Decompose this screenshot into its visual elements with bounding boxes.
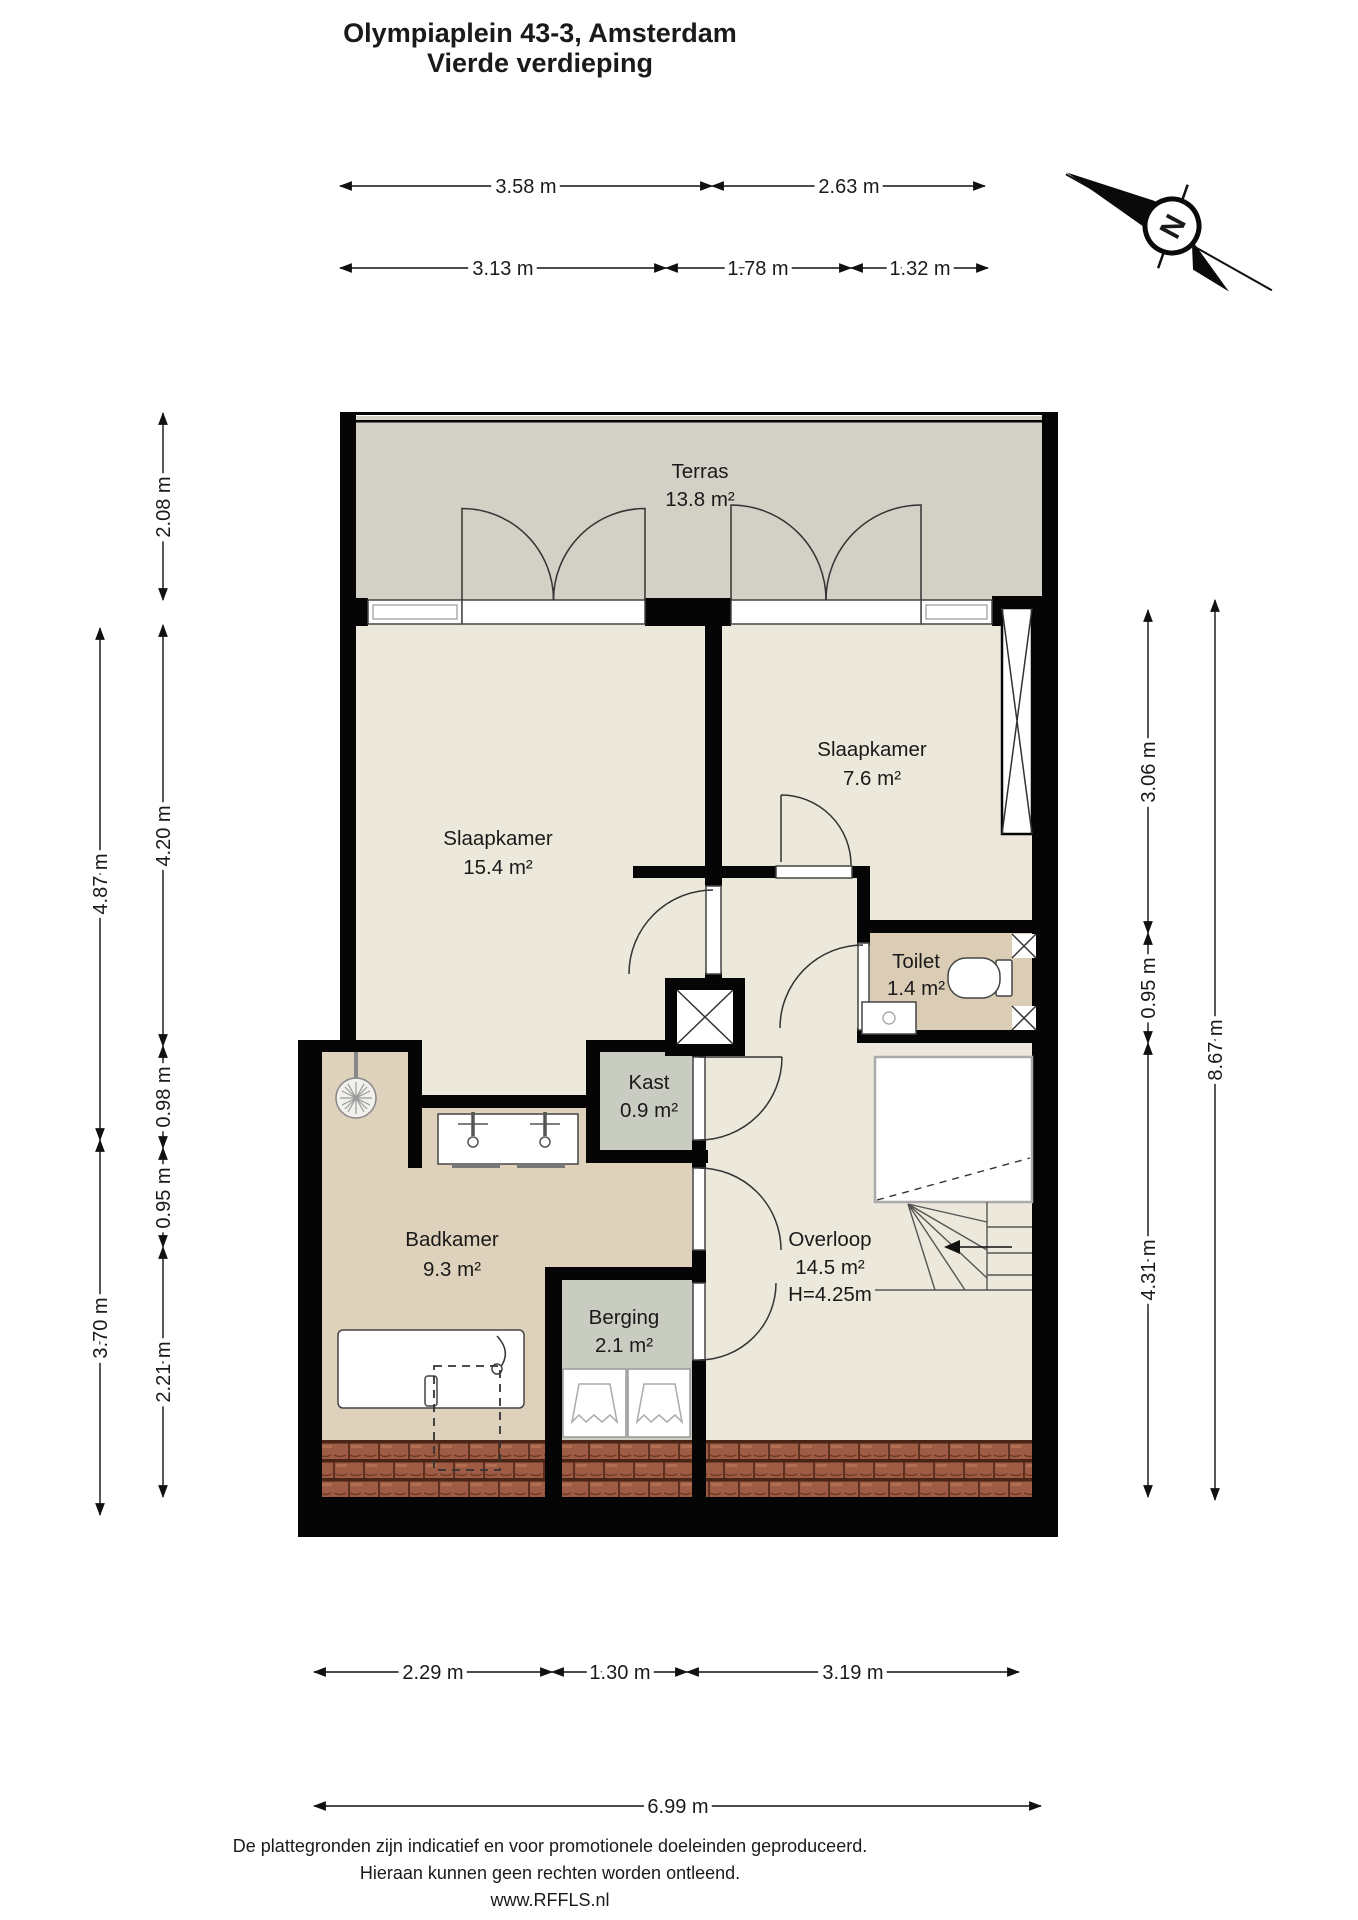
page-title: Olympiaplein 43-3, Amsterdam Vierde verd… (343, 18, 737, 78)
label-overloop-name: Overloop (788, 1228, 871, 1251)
label-overloop-height: H=4.25m (788, 1283, 872, 1306)
roof-tile-band (318, 1440, 1032, 1497)
window (921, 600, 992, 624)
dim-bottom: 3.19 m (822, 1662, 883, 1684)
duct-shaft (677, 990, 733, 1044)
stairwell-void (875, 1057, 1032, 1202)
label-kast-name: Kast (628, 1071, 669, 1094)
label-overloop-area: 14.5 m² (795, 1256, 865, 1279)
title-line1: Olympiaplein 43-3, Amsterdam (343, 18, 737, 48)
label-badkamer-name: Badkamer (405, 1228, 499, 1251)
floorplan-page: Olympiaplein 43-3, Amsterdam Vierde verd… (0, 0, 1358, 1920)
footer-line2: Hieraan kunnen geen rechten worden ontle… (360, 1863, 740, 1883)
compass-rose-icon: N (1047, 135, 1298, 318)
dim-left: 2.08 m (153, 476, 175, 537)
washing-machine (628, 1369, 690, 1437)
label-toilet-name: Toilet (892, 950, 940, 973)
terrace-door-sill (462, 600, 645, 624)
terras-floor (348, 416, 1050, 616)
dim-top: 2.63 m (818, 176, 879, 198)
dim-left: 0.98 m (153, 1066, 175, 1127)
floorplan-drawing: Olympiaplein 43-3, Amsterdam Vierde verd… (0, 0, 1358, 1920)
dim-left: 0.95 m (153, 1167, 175, 1228)
dim-left: 4.20 m (153, 805, 175, 866)
dim-bottom: 6.99 m (647, 1796, 708, 1818)
washing-machine (563, 1369, 626, 1437)
terrace-door-sill (731, 600, 921, 624)
footer-disclaimer: De plattegronden zijn indicatief en voor… (233, 1836, 867, 1910)
label-berging-area: 2.1 m² (595, 1334, 653, 1357)
label-terras-area: 13.8 m² (665, 488, 735, 511)
dim-top: 3.58 m (495, 176, 556, 198)
label-toilet-area: 1.4 m² (887, 977, 945, 1000)
dim-right: 3.06 m (1138, 741, 1160, 802)
dim-right: 4.31 m (1138, 1239, 1160, 1300)
dim-right: 0.95 m (1138, 957, 1160, 1018)
toilet-bowl (948, 958, 1012, 998)
label-badkamer-area: 9.3 m² (423, 1258, 481, 1281)
ventilation-shaft (1002, 608, 1032, 834)
toilet-sink (862, 1002, 916, 1034)
window (368, 600, 462, 624)
label-slaapkamer1-name: Slaapkamer (443, 827, 553, 850)
label-berging-name: Berging (589, 1306, 660, 1329)
dim-left: 4.87 m (90, 853, 112, 914)
dim-right: 8.67 m (1205, 1019, 1227, 1080)
slaapkamer1-floor-notch (422, 1046, 598, 1100)
dim-bottom: 1.30 m (589, 1662, 650, 1684)
footer-website: www.RFFLS.nl (489, 1890, 609, 1910)
label-terras-name: Terras (672, 460, 729, 483)
dim-left: 3.70 m (90, 1297, 112, 1358)
dim-top: 1.32 m (889, 258, 950, 280)
label-slaapkamer2-name: Slaapkamer (817, 738, 927, 761)
label-slaapkamer1-area: 15.4 m² (463, 856, 533, 879)
label-slaapkamer2-area: 7.6 m² (843, 767, 901, 790)
label-kast-area: 0.9 m² (620, 1099, 678, 1122)
double-washbasin (438, 1112, 578, 1166)
small-shaft (1012, 1006, 1036, 1030)
footer-line1: De plattegronden zijn indicatief en voor… (233, 1836, 867, 1856)
dim-top: 1.78 m (727, 258, 788, 280)
title-line2: Vierde verdieping (427, 48, 653, 78)
small-shaft (1012, 934, 1036, 958)
dim-bottom: 2.29 m (402, 1662, 463, 1684)
dim-top: 3.13 m (472, 258, 533, 280)
dim-left: 2.21 m (153, 1341, 175, 1402)
